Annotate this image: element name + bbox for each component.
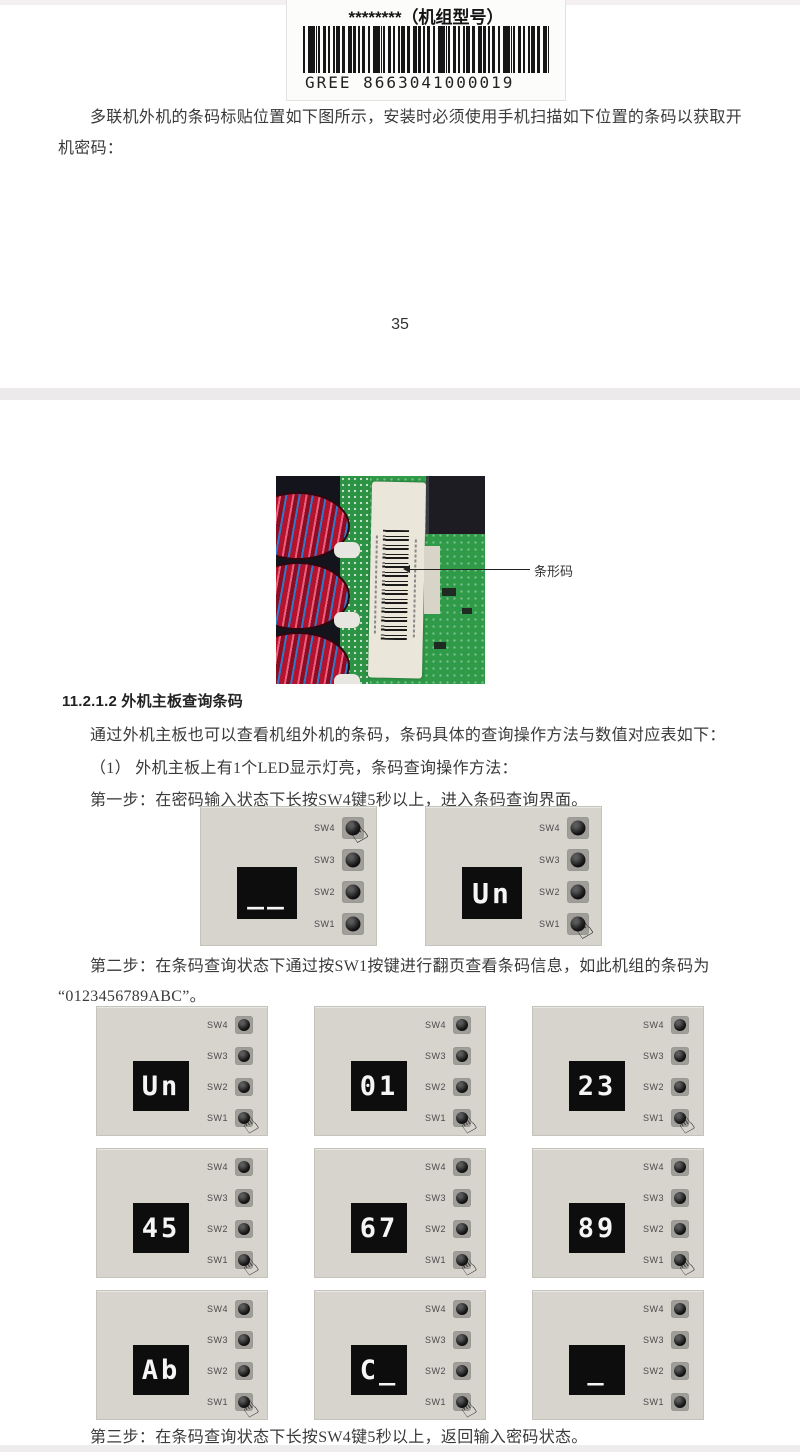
sw-button-column: SW4SW3SW2SW1☝: [425, 1016, 471, 1127]
sw-button-row: SW1☝: [643, 1109, 689, 1127]
sw-button: ☝: [453, 1251, 471, 1269]
led-display: Un: [462, 867, 522, 919]
led-display: 67: [351, 1203, 407, 1253]
led-display: 89: [569, 1203, 625, 1253]
sw-button: [671, 1393, 689, 1411]
sw-button-row: SW4: [425, 1016, 471, 1034]
sw-button-dot: [238, 1161, 250, 1173]
sw-button-row: SW4: [207, 1158, 253, 1176]
sw-button-row: SW2: [207, 1220, 253, 1238]
sw-button-dot: [456, 1081, 468, 1093]
sw-button-label: SW2: [643, 1366, 664, 1376]
sw-button-row: SW4: [643, 1158, 689, 1176]
hand-cursor-icon: ☝: [455, 1110, 481, 1138]
sw-button-label: SW1: [207, 1255, 228, 1265]
pcb-photo: [276, 476, 485, 684]
sw-button: [235, 1220, 253, 1238]
control-panel: _SW4SW3SW2SW1: [532, 1290, 704, 1420]
sw-button-row: SW2: [207, 1362, 253, 1380]
control-panel: UnSW4SW3SW2SW1☝: [425, 806, 602, 946]
led-display: 45: [133, 1203, 189, 1253]
sw-button-label: SW3: [425, 1193, 446, 1203]
sw-button-dot: [238, 1019, 250, 1031]
pcb-component: [426, 476, 485, 534]
sw-button-label: SW1: [207, 1397, 228, 1407]
section-heading: 11.2.1.2 外机主板查询条码: [62, 690, 243, 711]
sw-button: ☝: [567, 913, 589, 935]
control-panel: 45SW4SW3SW2SW1☝: [96, 1148, 268, 1278]
led-display: _: [569, 1345, 625, 1395]
sw-button-dot: [346, 853, 361, 868]
sw-button-dot: [456, 1192, 468, 1204]
intro-paragraph: 多联机外机的条码标贴位置如下图所示，安装时必须使用手机扫描如下位置的条码以获取开…: [58, 102, 748, 164]
sw-button-label: SW4: [314, 823, 335, 833]
sw-button: [342, 849, 364, 871]
sw-button: [671, 1331, 689, 1349]
sw-button-column: SW4☝SW3SW2SW1: [314, 817, 364, 935]
sw-button-label: SW2: [425, 1224, 446, 1234]
sw-button-dot: [456, 1303, 468, 1315]
sw-button-row: SW3: [425, 1189, 471, 1207]
sw-button-column: SW4SW3SW2SW1☝: [207, 1300, 253, 1411]
hand-cursor-icon: ☝: [673, 1252, 699, 1280]
sw-button-row: SW4: [643, 1300, 689, 1318]
sw-button-label: SW1: [643, 1113, 664, 1123]
sw-button-dot: [346, 885, 361, 900]
sw-button: [671, 1047, 689, 1065]
sw-button-dot: [674, 1050, 686, 1062]
sw-button: [342, 881, 364, 903]
sw-button-label: SW3: [207, 1335, 228, 1345]
sw-button-dot: [238, 1050, 250, 1062]
barcode-image: [303, 26, 549, 73]
sw-button: [567, 849, 589, 871]
sw-button: ☝: [671, 1251, 689, 1269]
sw-button-label: SW4: [643, 1020, 664, 1030]
sw-button: [453, 1362, 471, 1380]
sw-button: [453, 1158, 471, 1176]
sw-button-label: SW3: [643, 1193, 664, 1203]
led-display: 23: [569, 1061, 625, 1111]
sw-button-row: SW3: [643, 1189, 689, 1207]
control-panel: AbSW4SW3SW2SW1☝: [96, 1290, 268, 1420]
control-panel: 23SW4SW3SW2SW1☝: [532, 1006, 704, 1136]
sw-button-label: SW2: [643, 1224, 664, 1234]
control-panel: 01SW4SW3SW2SW1☝: [314, 1006, 486, 1136]
sticker-text-line: [413, 537, 417, 637]
sw-button-label: SW4: [643, 1162, 664, 1172]
sw-button-label: SW2: [207, 1366, 228, 1376]
sw-button-dot: [456, 1223, 468, 1235]
panel-row-step1: __SW4☝SW3SW2SW1UnSW4SW3SW2SW1☝: [200, 806, 602, 946]
hand-cursor-icon: ☝: [673, 1110, 699, 1138]
sw-button-label: SW4: [643, 1304, 664, 1314]
hand-cursor-icon: ☝: [569, 913, 598, 945]
control-panel: 67SW4SW3SW2SW1☝: [314, 1148, 486, 1278]
sw-button-label: SW1: [643, 1397, 664, 1407]
sw-button-row: SW2: [207, 1078, 253, 1096]
callout-line: [410, 569, 530, 570]
paragraph-led-note: （1） 外机主板上有1个LED显示灯亮，条码查询操作方法：: [58, 753, 748, 784]
sw-button-row: SW3: [207, 1047, 253, 1065]
sw-button: ☝: [671, 1109, 689, 1127]
sw-button-dot: [238, 1081, 250, 1093]
sw-button-label: SW4: [207, 1304, 228, 1314]
sw-button-column: SW4SW3SW2SW1☝: [643, 1158, 689, 1269]
sw-button: [453, 1300, 471, 1318]
sw-button-dot: [456, 1019, 468, 1031]
sw-button-row: SW4: [643, 1016, 689, 1034]
sw-button-row: SW1: [314, 913, 364, 935]
sw-button: [671, 1189, 689, 1207]
sw-button-dot: [674, 1192, 686, 1204]
sw-button-row: SW2: [539, 881, 589, 903]
sw-button: ☝: [235, 1109, 253, 1127]
sw-button-label: SW3: [425, 1051, 446, 1061]
sw-button-dot: [238, 1334, 250, 1346]
hand-cursor-icon: ☝: [455, 1394, 481, 1422]
sw-button: ☝: [342, 817, 364, 839]
sw-button-label: SW4: [539, 823, 560, 833]
sw-button-row: SW3: [539, 849, 589, 871]
sw-button-label: SW1: [314, 919, 335, 929]
sw-button-label: SW1: [539, 919, 560, 929]
sw-button-label: SW2: [207, 1082, 228, 1092]
sw-button-label: SW3: [425, 1335, 446, 1345]
sw-button: [671, 1078, 689, 1096]
sw-button-dot: [456, 1161, 468, 1173]
sw-button-row: SW1☝: [539, 913, 589, 935]
sw-button-row: SW4: [539, 817, 589, 839]
page-divider: [0, 388, 800, 400]
sw-button-dot: [346, 917, 361, 932]
sticker-barcode: [381, 530, 409, 641]
sw-button-dot: [456, 1050, 468, 1062]
hand-cursor-icon: ☝: [237, 1394, 263, 1422]
sw-button-row: SW3: [643, 1047, 689, 1065]
sw-button-row: SW4: [207, 1300, 253, 1318]
sw-button-label: SW2: [314, 887, 335, 897]
sw-button: [567, 881, 589, 903]
coil-clip: [334, 674, 360, 684]
barcode-label-title: ********（机组型号）: [287, 3, 565, 28]
panel-grid: UnSW4SW3SW2SW1☝01SW4SW3SW2SW1☝23SW4SW3SW…: [96, 1006, 704, 1420]
unit-barcode-label: ********（机组型号） GREE 8663041000019: [286, 0, 566, 101]
sw-button-dot: [674, 1223, 686, 1235]
sw-button-label: SW2: [643, 1082, 664, 1092]
sw-button-row: SW1☝: [207, 1393, 253, 1411]
manual-page: ********（机组型号） GREE 8663041000019 多联机外机的…: [0, 0, 800, 1452]
sw-button: [671, 1362, 689, 1380]
sw-button-row: SW2: [643, 1078, 689, 1096]
sw-button-dot: [456, 1334, 468, 1346]
sw-button: [235, 1047, 253, 1065]
sw-button: ☝: [235, 1251, 253, 1269]
sw-button-row: SW3: [425, 1047, 471, 1065]
sw-button: [453, 1047, 471, 1065]
sw-button: [235, 1158, 253, 1176]
sw-button-label: SW3: [643, 1051, 664, 1061]
hand-cursor-icon: ☝: [237, 1110, 263, 1138]
sw-button-label: SW2: [425, 1366, 446, 1376]
sw-button: ☝: [235, 1393, 253, 1411]
sw-button-row: SW3: [207, 1331, 253, 1349]
page-number: 35: [0, 316, 800, 334]
sw-button-row: SW2: [643, 1362, 689, 1380]
coil-clip: [334, 612, 360, 628]
led-display: 01: [351, 1061, 407, 1111]
control-panel: C_SW4SW3SW2SW1☝: [314, 1290, 486, 1420]
step2-text-line1: 第二步：在条码查询状态下通过按SW1按键进行翻页查看条码信息，如此机组的条码为: [58, 951, 748, 982]
sw-button: [235, 1189, 253, 1207]
sw-button-column: SW4SW3SW2SW1: [643, 1300, 689, 1411]
sw-button-column: SW4SW3SW2SW1☝: [207, 1158, 253, 1269]
sw-button-column: SW4SW3SW2SW1☝: [539, 817, 589, 935]
led-display: __: [237, 867, 297, 919]
led-display: Un: [133, 1061, 189, 1111]
sw-button-label: SW2: [539, 887, 560, 897]
sw-button: [671, 1016, 689, 1034]
sw-button: [235, 1331, 253, 1349]
sw-button-row: SW1☝: [425, 1109, 471, 1127]
sw-button: [453, 1016, 471, 1034]
sw-button-row: SW3: [643, 1331, 689, 1349]
sw-button-label: SW3: [314, 855, 335, 865]
paragraph-query-intro: 通过外机主板也可以查看机组外机的条码，条码具体的查询操作方法与数值对应表如下：: [58, 720, 748, 751]
sw-button-row: SW4: [207, 1016, 253, 1034]
sw-button-label: SW4: [425, 1020, 446, 1030]
led-display: Ab: [133, 1345, 189, 1395]
sw-button-row: SW2: [425, 1362, 471, 1380]
sticker-text-line: [374, 534, 378, 634]
page-edge-strip: [0, 1445, 800, 1452]
sw-button-row: SW3: [207, 1189, 253, 1207]
sw-button-label: SW1: [425, 1255, 446, 1265]
sw-button: [235, 1362, 253, 1380]
sw-button-row: SW3: [425, 1331, 471, 1349]
sw-button-row: SW1☝: [643, 1251, 689, 1269]
sw-button: [671, 1300, 689, 1318]
sw-button-dot: [674, 1365, 686, 1377]
barcode-sticker: [368, 481, 426, 678]
sw-button-dot: [674, 1303, 686, 1315]
sw-button: ☝: [453, 1393, 471, 1411]
sw-button-row: SW4: [425, 1300, 471, 1318]
sw-button: [453, 1220, 471, 1238]
sw-button: [453, 1078, 471, 1096]
sw-button-row: SW1☝: [425, 1251, 471, 1269]
sw-button-label: SW1: [425, 1113, 446, 1123]
sw-button-dot: [456, 1365, 468, 1377]
pcb-connector: [424, 546, 440, 614]
sw-button-label: SW2: [425, 1082, 446, 1092]
sw-button-label: SW3: [643, 1335, 664, 1345]
sw-button-row: SW1: [643, 1393, 689, 1411]
sw-button-row: SW1☝: [207, 1109, 253, 1127]
sw-button-row: SW4: [425, 1158, 471, 1176]
sw-button-label: SW4: [207, 1162, 228, 1172]
sw-button-dot: [674, 1396, 686, 1408]
sw-button-dot: [571, 853, 586, 868]
sw-button-dot: [238, 1192, 250, 1204]
sw-button-dot: [571, 885, 586, 900]
sw-button: [235, 1016, 253, 1034]
sw-button-row: SW4☝: [314, 817, 364, 839]
sw-button: [453, 1189, 471, 1207]
pcb-component: [434, 642, 446, 649]
sw-button-column: SW4SW3SW2SW1☝: [207, 1016, 253, 1127]
sw-button-column: SW4SW3SW2SW1☝: [643, 1016, 689, 1127]
callout-label: 条形码: [534, 561, 573, 580]
control-panel: UnSW4SW3SW2SW1☝: [96, 1006, 268, 1136]
sw-button: [235, 1300, 253, 1318]
sw-button-column: SW4SW3SW2SW1☝: [425, 1300, 471, 1411]
sw-button-dot: [674, 1019, 686, 1031]
sw-button-label: SW3: [207, 1051, 228, 1061]
sw-button-label: SW1: [643, 1255, 664, 1265]
sw-button: [453, 1331, 471, 1349]
sw-button-label: SW2: [207, 1224, 228, 1234]
sw-button: [342, 913, 364, 935]
callout-arrow-icon: [403, 565, 410, 573]
sw-button-row: SW1☝: [207, 1251, 253, 1269]
sw-button-label: SW3: [539, 855, 560, 865]
sw-button-column: SW4SW3SW2SW1☝: [425, 1158, 471, 1269]
sw-button-row: SW2: [425, 1078, 471, 1096]
control-panel: 89SW4SW3SW2SW1☝: [532, 1148, 704, 1278]
sw-button-label: SW1: [207, 1113, 228, 1123]
sw-button-label: SW3: [207, 1193, 228, 1203]
sw-button-row: SW1☝: [425, 1393, 471, 1411]
pcb-component: [462, 608, 472, 614]
coil-clip: [334, 542, 360, 558]
sw-button: [235, 1078, 253, 1096]
sw-button-dot: [238, 1223, 250, 1235]
sw-button-dot: [674, 1334, 686, 1346]
sw-button-dot: [674, 1081, 686, 1093]
sw-button-row: SW2: [425, 1220, 471, 1238]
sw-button-dot: [238, 1365, 250, 1377]
sw-button-label: SW4: [207, 1020, 228, 1030]
sw-button: [567, 817, 589, 839]
hand-cursor-icon: ☝: [344, 817, 373, 849]
sw-button: [671, 1220, 689, 1238]
barcode-code-text: GREE 8663041000019: [305, 73, 514, 92]
sw-button-label: SW4: [425, 1304, 446, 1314]
sw-button-dot: [674, 1161, 686, 1173]
hand-cursor-icon: ☝: [237, 1252, 263, 1280]
sw-button: [671, 1158, 689, 1176]
control-panel: __SW4☝SW3SW2SW1: [200, 806, 377, 946]
sw-button: ☝: [453, 1109, 471, 1127]
led-display: C_: [351, 1345, 407, 1395]
sw-button-dot: [571, 821, 586, 836]
hand-cursor-icon: ☝: [455, 1252, 481, 1280]
pcb-component: [442, 588, 456, 596]
sw-button-row: SW2: [643, 1220, 689, 1238]
sw-button-dot: [238, 1303, 250, 1315]
sw-button-label: SW4: [425, 1162, 446, 1172]
sw-button-row: SW3: [314, 849, 364, 871]
sw-button-label: SW1: [425, 1397, 446, 1407]
sw-button-row: SW2: [314, 881, 364, 903]
